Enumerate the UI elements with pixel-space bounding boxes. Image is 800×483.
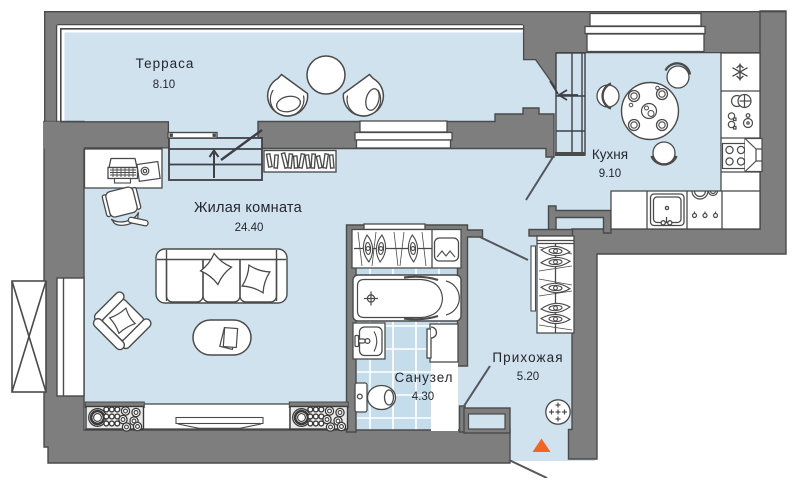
svg-text:5.20: 5.20 <box>517 371 539 383</box>
svg-text:Терраса: Терраса <box>136 56 195 71</box>
svg-text:4.30: 4.30 <box>412 391 434 403</box>
svg-text:Прихожая: Прихожая <box>492 350 563 365</box>
svg-text:Кухня: Кухня <box>592 147 628 162</box>
svg-text:8.10: 8.10 <box>153 79 175 91</box>
svg-text:9.10: 9.10 <box>599 168 621 180</box>
svg-text:24.40: 24.40 <box>235 222 264 234</box>
svg-text:Санузел: Санузел <box>395 370 454 385</box>
svg-text:Жилая комната: Жилая комната <box>194 200 303 216</box>
